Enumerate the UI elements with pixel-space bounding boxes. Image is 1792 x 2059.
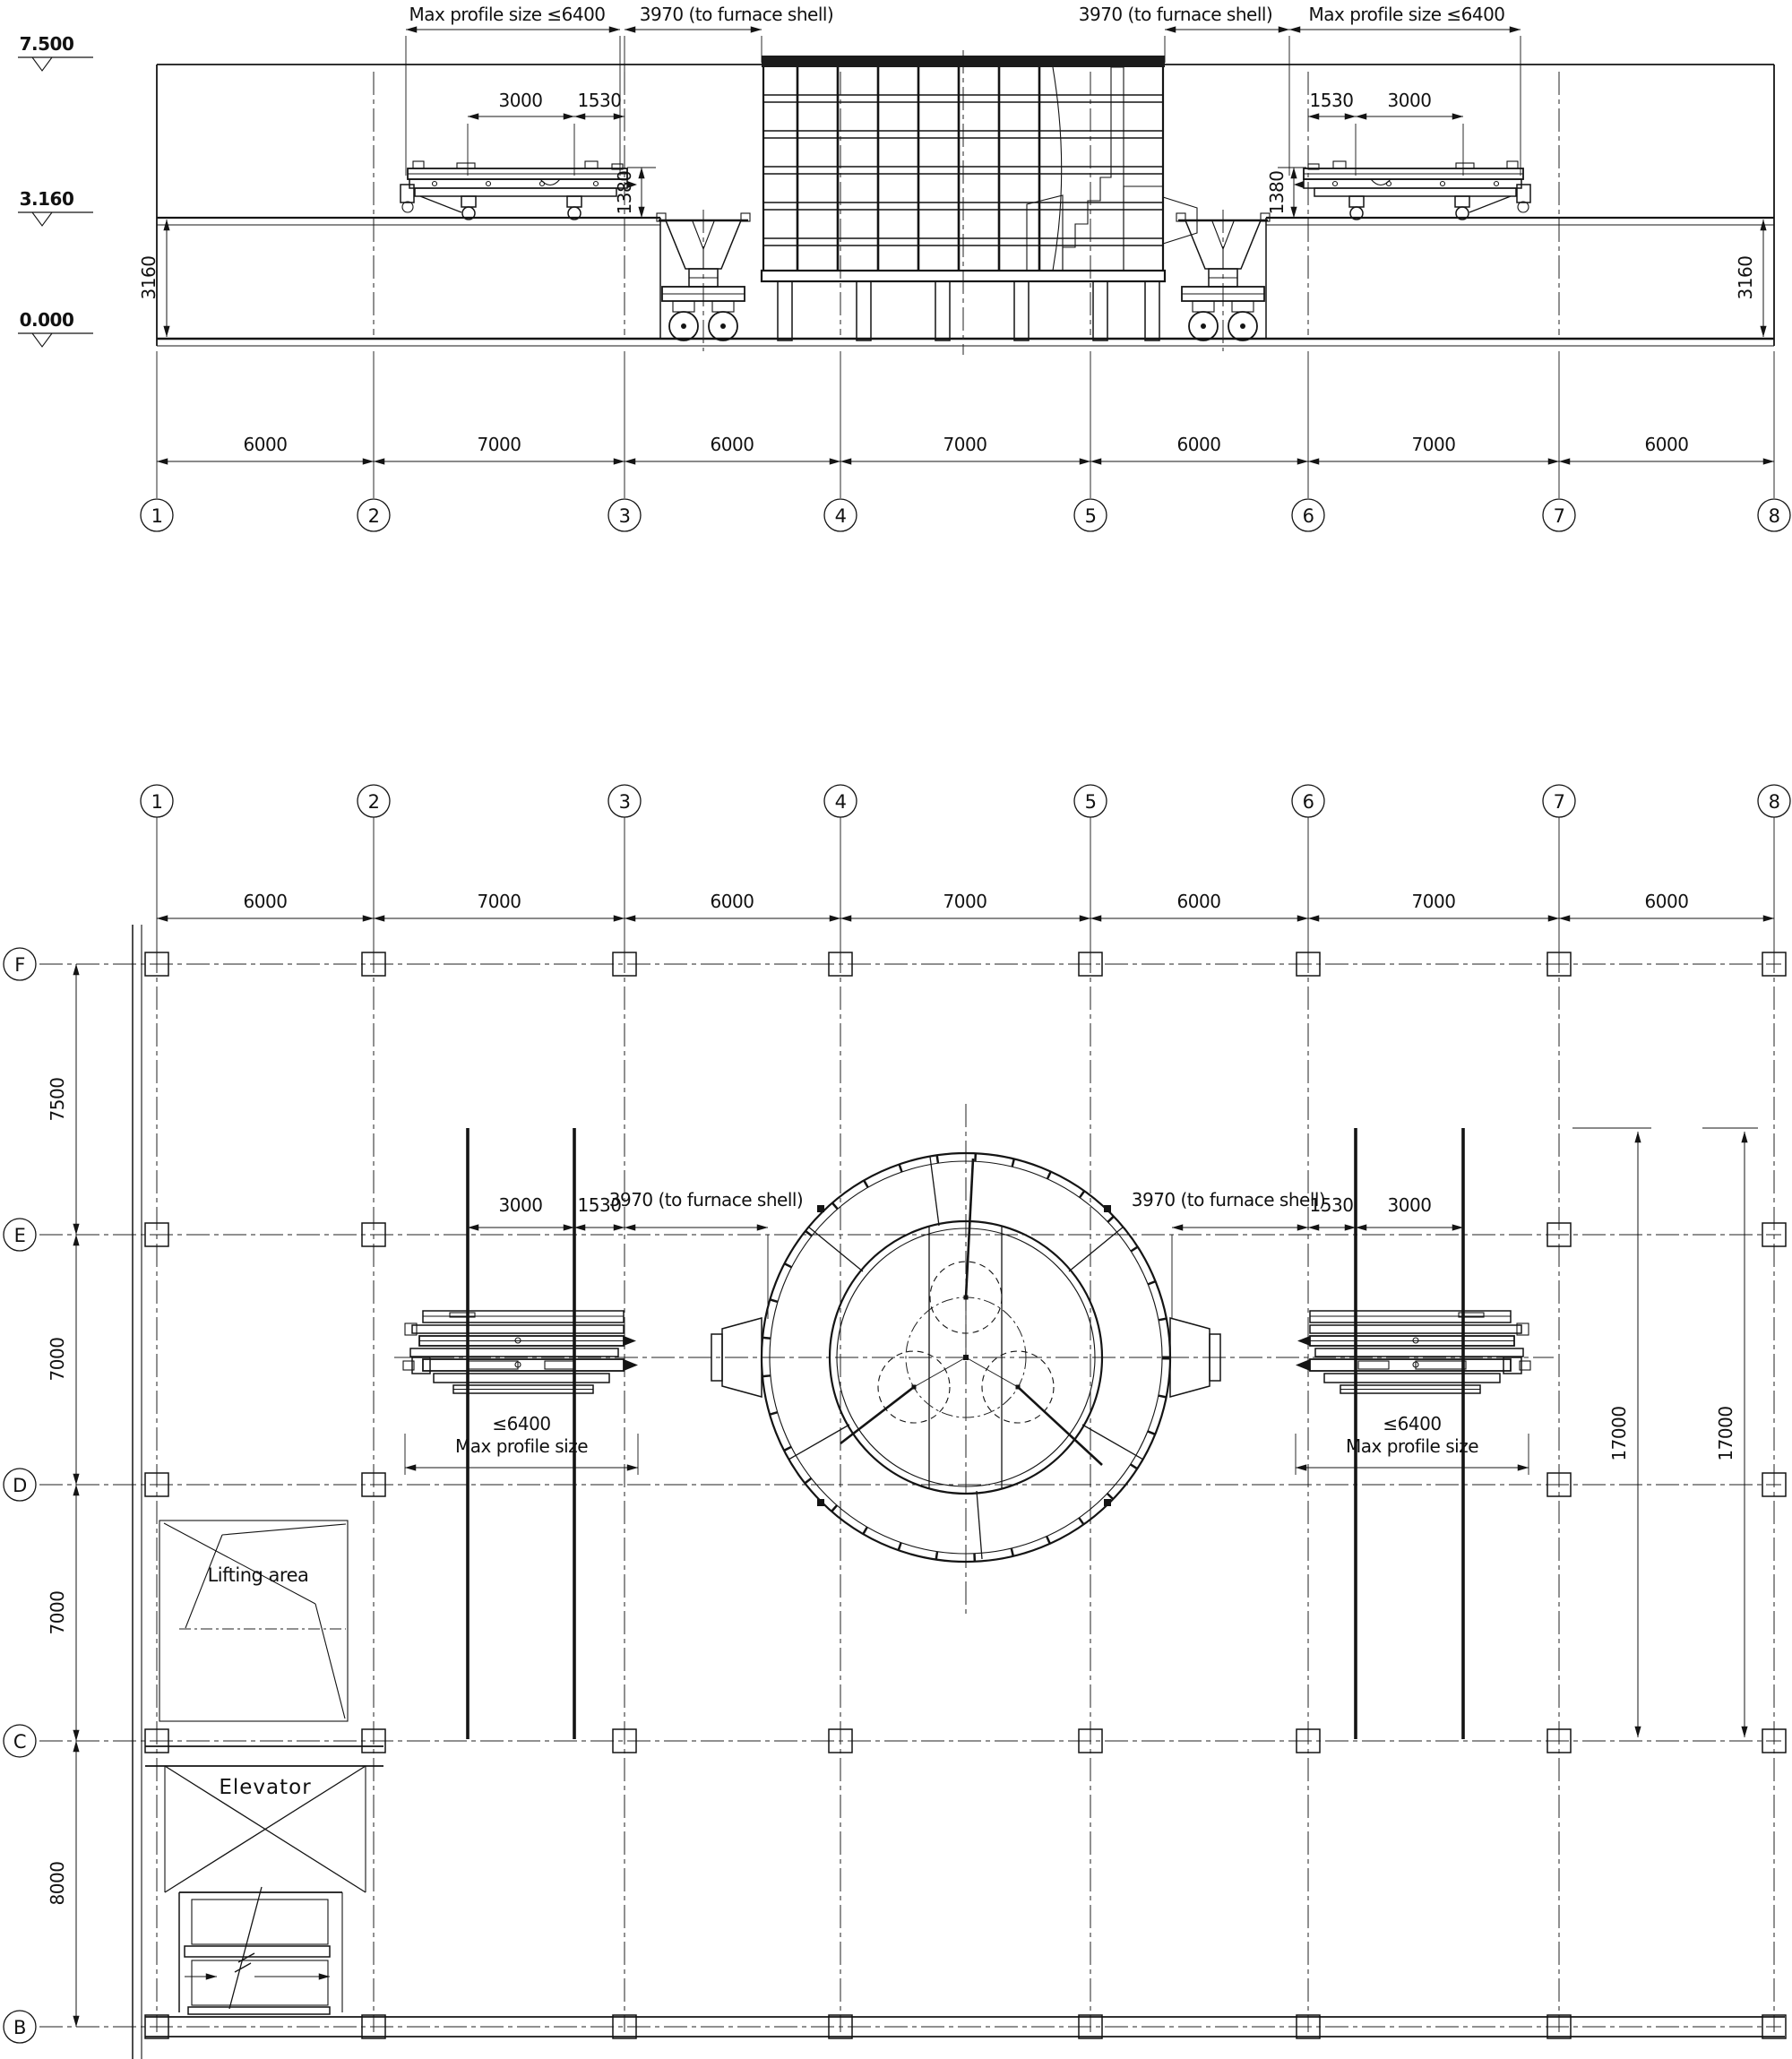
row-bubble-label: B	[13, 2017, 26, 2038]
bay-dim-label: 6000	[711, 891, 754, 912]
row-dim-label: 7000	[47, 1338, 68, 1382]
rail-dim-label: 17000	[1715, 1406, 1736, 1460]
dim-label: 1530	[1310, 1194, 1354, 1216]
grid-bubble-label: 4	[835, 505, 847, 527]
elevation-machine-dimensions: 3000 1530 1530 3000 1380 1380	[468, 90, 1463, 218]
bay-dim-label: 6000	[1645, 891, 1689, 912]
level-marker-7500: 7.500	[18, 33, 93, 71]
grid-bubble-label: 5	[1085, 505, 1097, 527]
row-bubble-label: F	[14, 954, 25, 976]
max-profile-value: ≤6400	[492, 1413, 550, 1434]
refractory-brick-lining	[1063, 67, 1124, 271]
beams	[145, 1746, 1785, 2037]
elevation-floor-dimensions: 3160 3160	[138, 220, 1763, 337]
row-bubble-label: D	[13, 1475, 27, 1496]
stair-break-line	[229, 1887, 262, 2009]
dim-label-3160-right: 3160	[1735, 256, 1756, 300]
level-label: 7.500	[20, 33, 74, 55]
dim-label: 3000	[499, 1194, 543, 1216]
furnace-elevation	[762, 56, 1197, 340]
plan-row-dimensions: 7500 7000 7000 8000	[47, 964, 76, 2027]
grid-bubble-label: 3	[619, 791, 631, 813]
bay-dim-label: 7000	[478, 891, 521, 912]
rail-dim-label: 17000	[1608, 1406, 1630, 1460]
dim-label: 3000	[499, 90, 543, 111]
dim-label: 1530	[1310, 90, 1354, 111]
bay-dim-label: 6000	[244, 891, 288, 912]
level-label: 0.000	[20, 309, 74, 331]
grid-bubble-label: 3	[619, 505, 631, 527]
grid-bubble-label: 7	[1554, 791, 1565, 813]
furnace-bay-technical-drawing: 7.500 3.160 0.000	[0, 0, 1792, 2059]
max-profile-caption: Max profile size	[455, 1435, 588, 1457]
plan-row-lines: F E D C B	[4, 948, 1781, 2043]
dim-label-to-furnace-left: 3970 (to furnace shell)	[609, 1189, 804, 1210]
elevation-grid-bubbles: 1 2 3 4 5 6 7 8	[141, 499, 1790, 531]
bay-dim-label: 7000	[478, 434, 521, 455]
lifting-area-label: Lifting area	[208, 1564, 309, 1586]
dim-label-3160-left: 3160	[138, 256, 159, 300]
row-bubble-label: E	[14, 1225, 26, 1246]
bay-dim-label: 6000	[244, 434, 288, 455]
grid-bubble-label: 8	[1769, 505, 1780, 527]
plan-grid-lines	[157, 817, 1774, 2032]
bay-dim-label: 6000	[1645, 434, 1689, 455]
grid-bubble-label: 4	[835, 791, 847, 813]
bay-dim-label: 6000	[711, 434, 754, 455]
bay-dim-label: 7000	[943, 891, 987, 912]
electrode-arm	[1018, 1387, 1102, 1465]
lifting-area: Lifting area	[159, 1521, 348, 1721]
plan-grid-bubbles: 1 2 3 4 5 6 7 8	[141, 785, 1790, 817]
dim-label-max-profile-left: Max profile size ≤6400	[409, 4, 605, 25]
grid-bubble-label: 2	[368, 791, 380, 813]
plan-view: 1 2 3 4 5 6 7 8 6000 7000 6000 7000 6000…	[4, 785, 1790, 2059]
stair-landing	[185, 1946, 330, 1957]
bay-dim-label: 7000	[1412, 891, 1456, 912]
dim-label: 3000	[1388, 90, 1432, 111]
dim-label-to-furnace-right: 3970 (to furnace shell)	[1132, 1189, 1326, 1210]
grid-bubble-label: 1	[151, 505, 163, 527]
row-dim-label: 7000	[47, 1591, 68, 1635]
grid-bubble-label: 5	[1085, 791, 1097, 813]
elevation-view: 7.500 3.160 0.000	[18, 4, 1790, 531]
grid-bubble-label: 6	[1303, 505, 1314, 527]
level-label: 3.160	[20, 188, 74, 210]
grid-bubble-label: 1	[151, 791, 163, 813]
elevation-grid-dimensions: 6000 7000 6000 7000 6000 7000 6000 1 2 3…	[141, 351, 1790, 531]
plan-bay-dimensions: 6000 7000 6000 7000 6000 7000 6000	[157, 891, 1774, 918]
dim-label-to-furnace-left: 3970 (to furnace shell)	[640, 4, 834, 25]
max-profile-caption: Max profile size	[1346, 1435, 1478, 1457]
bay-dim-label: 6000	[1177, 434, 1221, 455]
grid-bubble-label: 6	[1303, 791, 1314, 813]
dim-label-1380-right: 1380	[1266, 171, 1288, 215]
stair-flight-upper	[192, 1900, 328, 1944]
bay-dim-label: 6000	[1177, 891, 1221, 912]
elevator: Elevator	[165, 1766, 366, 1892]
bay-dim-label: 7000	[943, 434, 987, 455]
level-marker-0000: 0.000	[18, 309, 93, 347]
rail-length-dimensions: 17000 17000	[1572, 1128, 1758, 1737]
row-dim-label: 8000	[47, 1862, 68, 1906]
left-wall	[133, 925, 142, 2059]
dim-label-to-furnace-right: 3970 (to furnace shell)	[1079, 4, 1273, 25]
row-bubble-label: C	[13, 1731, 26, 1753]
dim-label-1380-left: 1380	[614, 171, 635, 215]
dim-label: 3000	[1388, 1194, 1432, 1216]
max-profile-value: ≤6400	[1383, 1413, 1441, 1434]
electrode-arm	[840, 1387, 914, 1443]
grid-bubble-label: 7	[1554, 505, 1565, 527]
dim-label-max-profile-right: Max profile size ≤6400	[1308, 4, 1504, 25]
staircase	[179, 1887, 342, 2014]
grid-bubble-label: 8	[1769, 791, 1780, 813]
level-marker-3160: 3.160	[18, 188, 93, 226]
grid-bubble-label: 2	[368, 505, 380, 527]
bay-dim-label: 7000	[1412, 434, 1456, 455]
dim-label: 1530	[578, 90, 622, 111]
elevator-label: Elevator	[219, 1776, 311, 1799]
row-dim-label: 7500	[47, 1078, 68, 1122]
